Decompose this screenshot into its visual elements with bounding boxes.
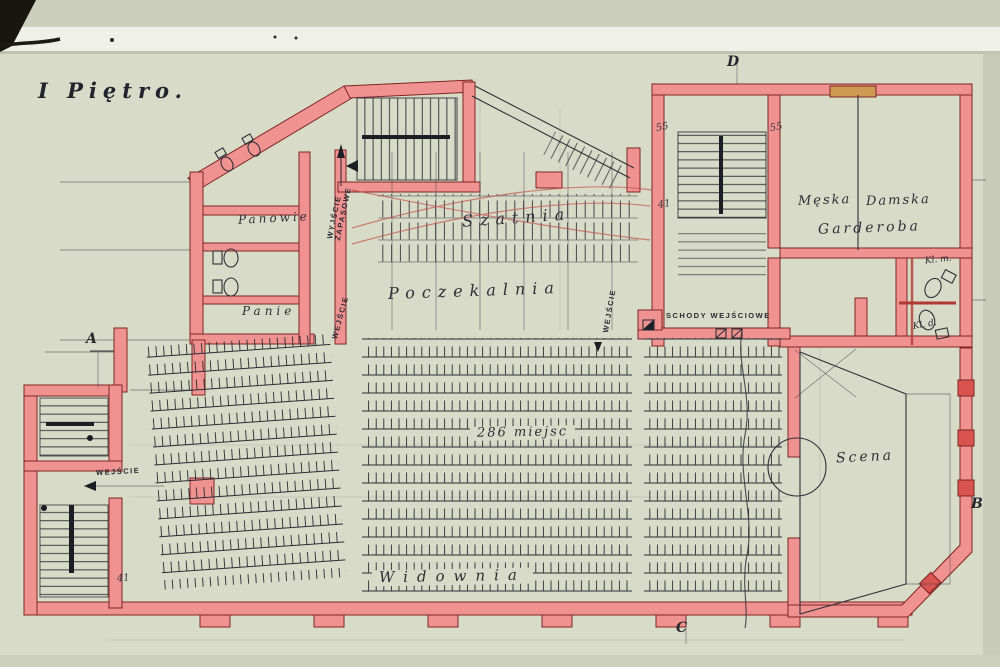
label-entrance-stairs: SCHODY WEJŚCIOWE [666,312,771,320]
page-title: I Piętro. [38,80,188,102]
room-label-panie: Panie [242,305,295,318]
room-label-garderoba-meska: Męska [798,193,852,208]
handrail [69,505,74,573]
room-label-widownia: Widownia [372,568,533,587]
page-edge-band [0,27,1000,53]
room-label-garderoba-damska: Damska [866,193,931,209]
window-pier [958,480,974,496]
dimension-41-left: 41 [116,573,130,585]
stairs-right-stairwell [678,132,766,280]
seating-centre-block [362,338,632,592]
dimension-41-right: 41 [657,199,671,211]
marker-c: C [676,621,687,636]
seating-left-block [146,331,347,589]
window-pier [958,430,974,446]
seat-count-label: 286 miejsc [470,425,575,440]
marker-b: B [971,497,983,512]
orange-patch [830,86,876,97]
marker-d: D [727,55,739,70]
window-pier [958,380,974,396]
room-label-scena: Scena [836,448,895,466]
seating-right-block [644,338,782,592]
marker-a: A [86,332,97,347]
floor-plan-photo: I Piętro. Panowie Panie Szatnia Poczekal… [0,0,1000,667]
dimension-55-right: 55 [769,122,783,135]
room-label-garderoba: Garderoba [818,219,921,237]
